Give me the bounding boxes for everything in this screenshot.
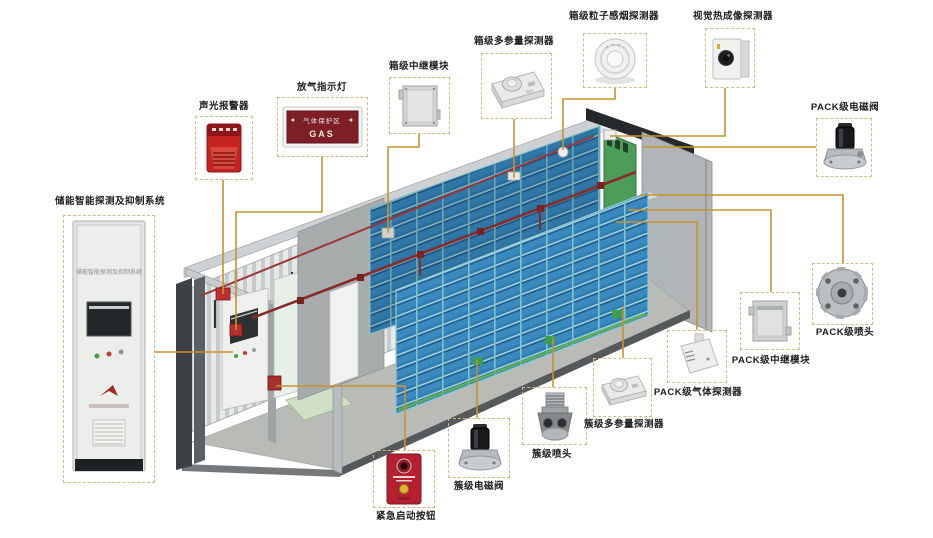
- label-box-multiparam-detector: 箱级多参量探测器: [459, 36, 569, 48]
- callout-main-system: 储能智能探测及抑制系统: [63, 215, 155, 483]
- label-gas-release-indicator: 放气指示灯: [272, 82, 372, 94]
- callout-box-relay-module: [389, 77, 450, 134]
- label-sound-light-alarm: 声光报警器: [174, 101, 274, 113]
- callout-box-multiparam-detector: [481, 53, 552, 119]
- label-emergency-button: 紧急启动按钮: [356, 511, 456, 523]
- callout-emergency-button: [373, 450, 435, 508]
- emergency-button-icon: [374, 451, 434, 507]
- callout-pack-nozzle: [812, 263, 873, 325]
- cabinet-title-text: 储能智能探测及抑制系统: [76, 268, 142, 276]
- cluster-nozzle-icon: [523, 388, 586, 444]
- left-door-panel-2: [194, 276, 205, 464]
- solenoid-valve-icon: [817, 119, 871, 176]
- label-pack-gas-detector: PACK级气体探测器: [638, 387, 758, 399]
- thermal-camera-icon: [706, 29, 754, 87]
- callout-sound-light-alarm: [195, 116, 253, 180]
- suppression-cabinet-icon: 储能智能探测及抑制系统: [64, 216, 154, 482]
- left-door-panel: [176, 278, 192, 470]
- callout-box-smoke-detector: [583, 33, 647, 88]
- sound-light-alarm-icon: [196, 117, 252, 179]
- callout-cluster-solenoid-valve: [448, 418, 510, 478]
- callout-pack-relay-module: [740, 292, 800, 350]
- smoke-detector-icon: [584, 34, 646, 87]
- gas-indicator-icon: 气体保护区 GAS: [278, 98, 367, 156]
- label-pack-nozzle: PACK级喷头: [795, 327, 895, 339]
- multiparam-detector-icon: [482, 54, 551, 118]
- diagram-stage: 储能智能探测及抑制系统 气体保护区 GAS: [0, 0, 933, 538]
- callout-cluster-nozzle: [522, 387, 587, 445]
- label-main-system: 储能智能探测及抑制系统: [40, 196, 180, 208]
- label-box-smoke-detector: 箱级粒子感烟探测器: [554, 11, 674, 23]
- pack-nozzle-icon: [813, 264, 872, 324]
- label-pack-relay-module: PACK级中继模块: [716, 355, 826, 367]
- left-bottom-rail: [182, 464, 340, 477]
- label-pack-solenoid-valve: PACK级电磁阀: [795, 102, 895, 114]
- label-cluster-solenoid-valve: 簇级电磁阀: [434, 481, 524, 493]
- cluster-valve-icon: [449, 419, 509, 477]
- label-thermal-imaging-detector: 视觉热成像探测器: [678, 11, 788, 23]
- interior-control-cabinet: [222, 288, 268, 410]
- pack-relay-icon: [741, 293, 799, 349]
- callout-gas-release-indicator: 气体保护区 GAS: [277, 97, 368, 157]
- label-cluster-nozzle: 簇级喷头: [512, 449, 592, 461]
- label-cluster-multiparam-detector: 簇级多参量探测器: [559, 419, 689, 431]
- gas-zone-text: 气体保护区: [303, 116, 341, 125]
- label-box-relay-module: 箱级中继模块: [369, 61, 469, 73]
- relay-module-icon: [390, 78, 449, 133]
- gas-text: GAS: [309, 129, 335, 139]
- callout-thermal-imaging-detector: [705, 28, 755, 88]
- callout-pack-solenoid-valve: [816, 118, 872, 177]
